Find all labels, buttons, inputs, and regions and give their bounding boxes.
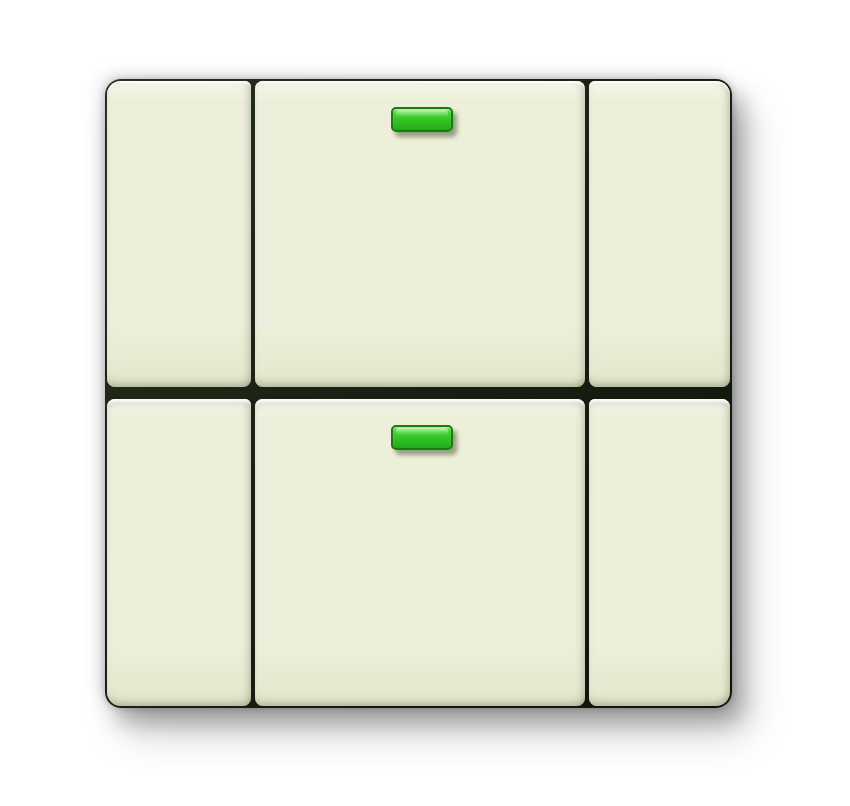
rocker-bottom-center[interactable] xyxy=(255,399,585,706)
status-led-bottom xyxy=(391,425,453,450)
rocker-bottom-left[interactable] xyxy=(107,399,251,706)
rocker-top-right[interactable] xyxy=(589,81,730,387)
switch-product-photo xyxy=(0,0,850,806)
status-led-top xyxy=(391,107,453,132)
switch-plate xyxy=(105,79,732,708)
rocker-top-center[interactable] xyxy=(255,81,585,387)
rocker-top-left[interactable] xyxy=(107,81,251,387)
rocker-bottom-right[interactable] xyxy=(589,399,730,706)
